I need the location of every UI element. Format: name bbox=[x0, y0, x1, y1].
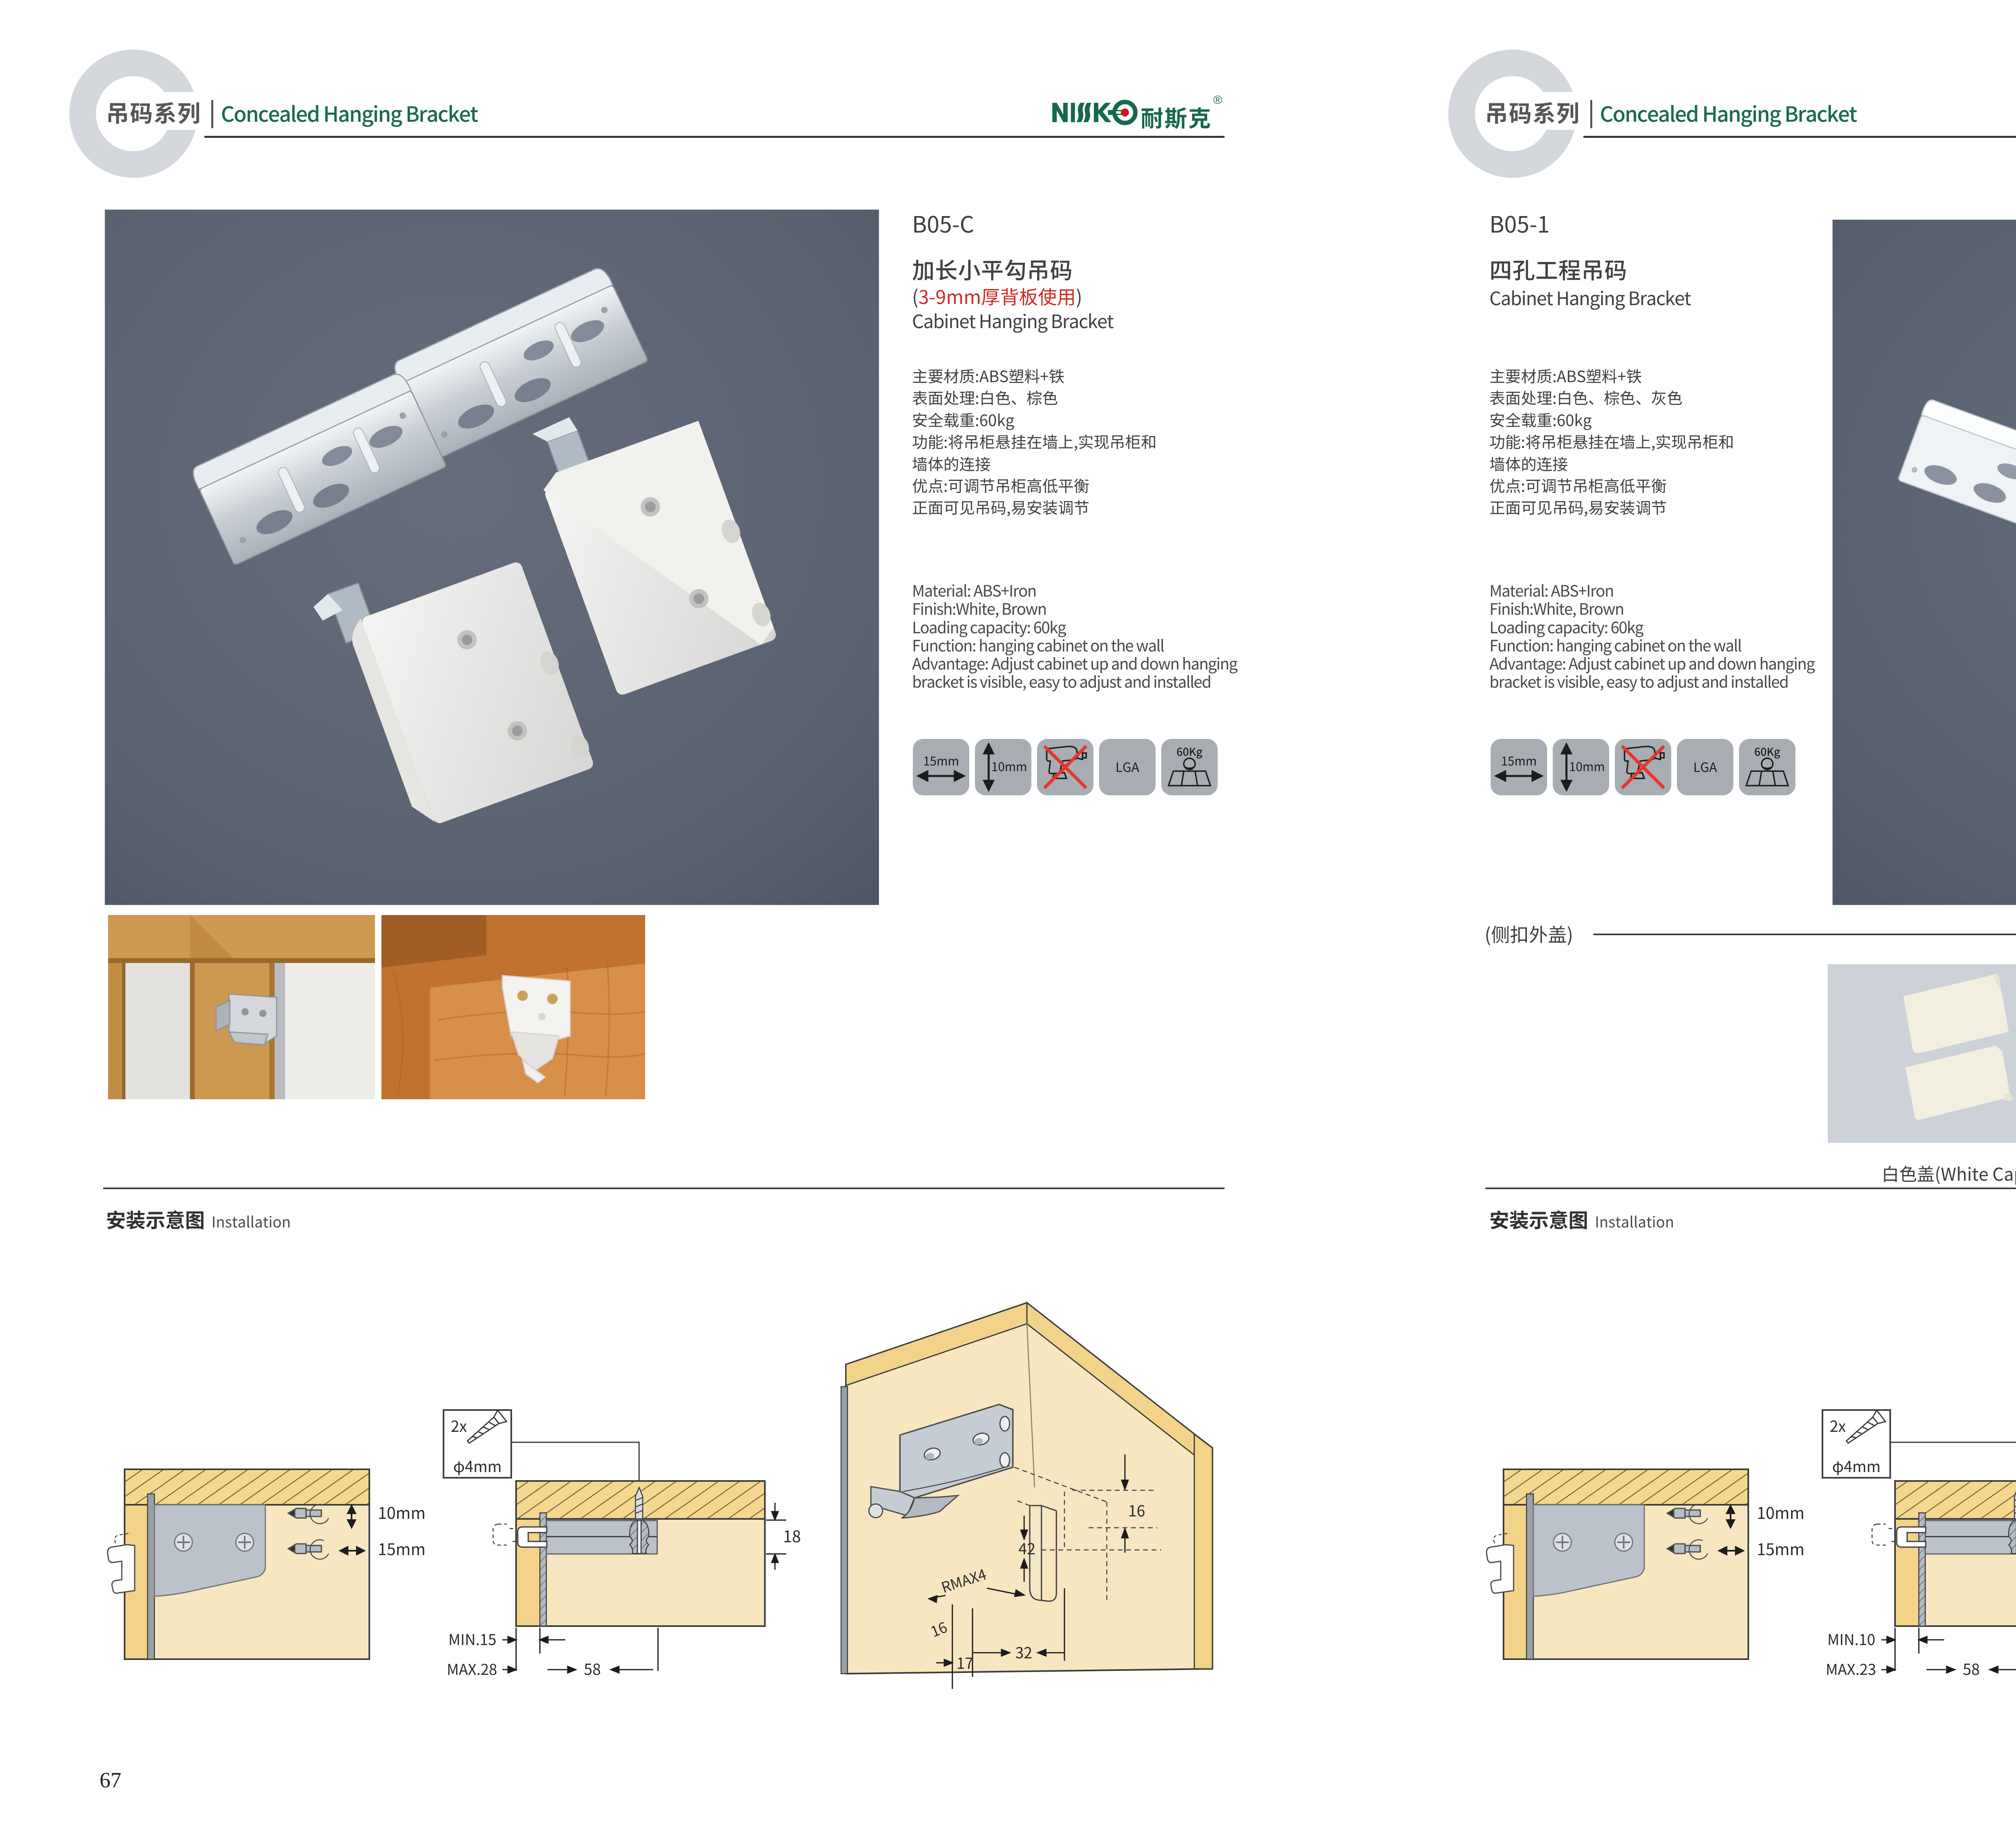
svg-text:耐斯克: 耐斯克 bbox=[1141, 101, 1212, 133]
svg-text:60Kg: 60Kg bbox=[1177, 743, 1203, 759]
svg-text:MIN.10: MIN.10 bbox=[1827, 1628, 1875, 1649]
svg-text:32: 32 bbox=[1015, 1641, 1032, 1663]
svg-text:®: ® bbox=[1213, 92, 1222, 108]
svg-text:58: 58 bbox=[584, 1657, 601, 1679]
svg-text:2x: 2x bbox=[1830, 1414, 1846, 1436]
svg-text:φ4mm: φ4mm bbox=[1832, 1454, 1881, 1477]
svg-text:15mm: 15mm bbox=[923, 751, 959, 769]
svg-text:MAX.28: MAX.28 bbox=[447, 1658, 497, 1679]
svg-text:2x: 2x bbox=[451, 1414, 467, 1436]
svg-text:15mm: 15mm bbox=[1757, 1537, 1804, 1560]
svg-text:18: 18 bbox=[783, 1524, 801, 1547]
svg-text:16: 16 bbox=[1128, 1499, 1145, 1521]
svg-text:42: 42 bbox=[1018, 1537, 1035, 1559]
svg-text:10mm: 10mm bbox=[991, 757, 1027, 775]
svg-text:LGA: LGA bbox=[1693, 757, 1717, 776]
svg-text:φ4mm: φ4mm bbox=[453, 1454, 502, 1477]
svg-text:15mm: 15mm bbox=[1501, 751, 1537, 769]
svg-text:MIN.15: MIN.15 bbox=[448, 1628, 496, 1649]
svg-text:10mm: 10mm bbox=[378, 1500, 425, 1524]
svg-text:17: 17 bbox=[956, 1651, 973, 1673]
svg-text:58: 58 bbox=[1963, 1657, 1980, 1679]
svg-text:15mm: 15mm bbox=[378, 1537, 425, 1560]
svg-text:MAX.23: MAX.23 bbox=[1826, 1658, 1876, 1679]
svg-text:60Kg: 60Kg bbox=[1754, 743, 1781, 759]
svg-text:10mm: 10mm bbox=[1757, 1500, 1804, 1524]
svg-text:10mm: 10mm bbox=[1569, 757, 1605, 775]
svg-text:LGA: LGA bbox=[1116, 757, 1139, 776]
